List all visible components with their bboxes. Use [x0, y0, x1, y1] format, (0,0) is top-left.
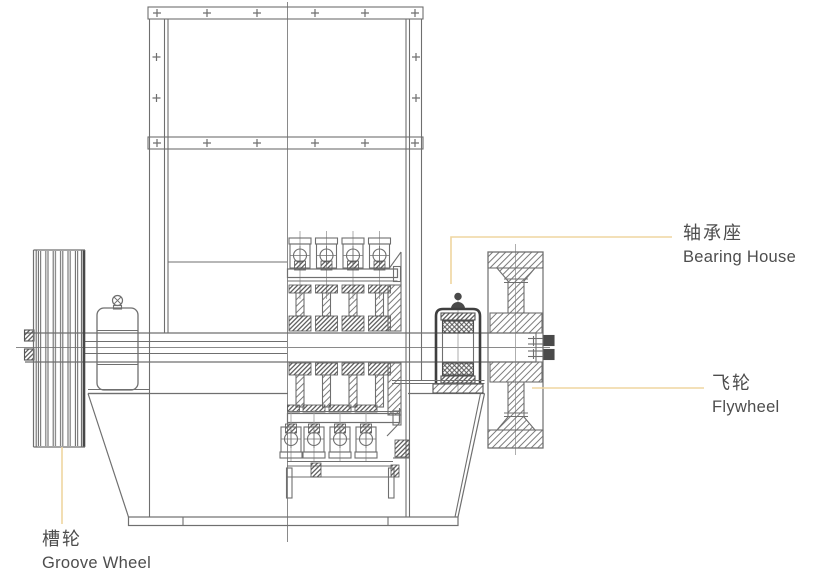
left-bearing-pedestal — [88, 296, 149, 394]
base-housing — [88, 381, 485, 526]
bearing-house-label-zh: 轴承座 — [683, 222, 796, 245]
flywheel-part — [488, 244, 554, 455]
bearing-house-leader — [451, 237, 672, 284]
rotor-lower-assembly — [280, 363, 409, 498]
flywheel-label-zh: 飞轮 — [712, 372, 780, 395]
bearing-house-part — [436, 293, 480, 392]
flywheel-label-en: Flywheel — [712, 397, 780, 418]
bearing-house-label-en: Bearing House — [683, 247, 796, 268]
groove-wheel-label: 槽轮 Groove Wheel — [42, 528, 151, 573]
main-shaft — [25, 330, 537, 362]
flywheel-label: 飞轮 Flywheel — [712, 372, 780, 417]
bearing-house-label: 轴承座 Bearing House — [683, 222, 796, 267]
groove-wheel-label-zh: 槽轮 — [42, 528, 151, 551]
groove-wheel-part — [34, 250, 86, 447]
diagram-linework — [0, 0, 823, 575]
rotor-upper-assembly — [288, 231, 402, 331]
groove-wheel-label-en: Groove Wheel — [42, 553, 151, 574]
machine-section-diagram: 轴承座 Bearing House 飞轮 Flywheel 槽轮 Groove … — [0, 0, 823, 575]
